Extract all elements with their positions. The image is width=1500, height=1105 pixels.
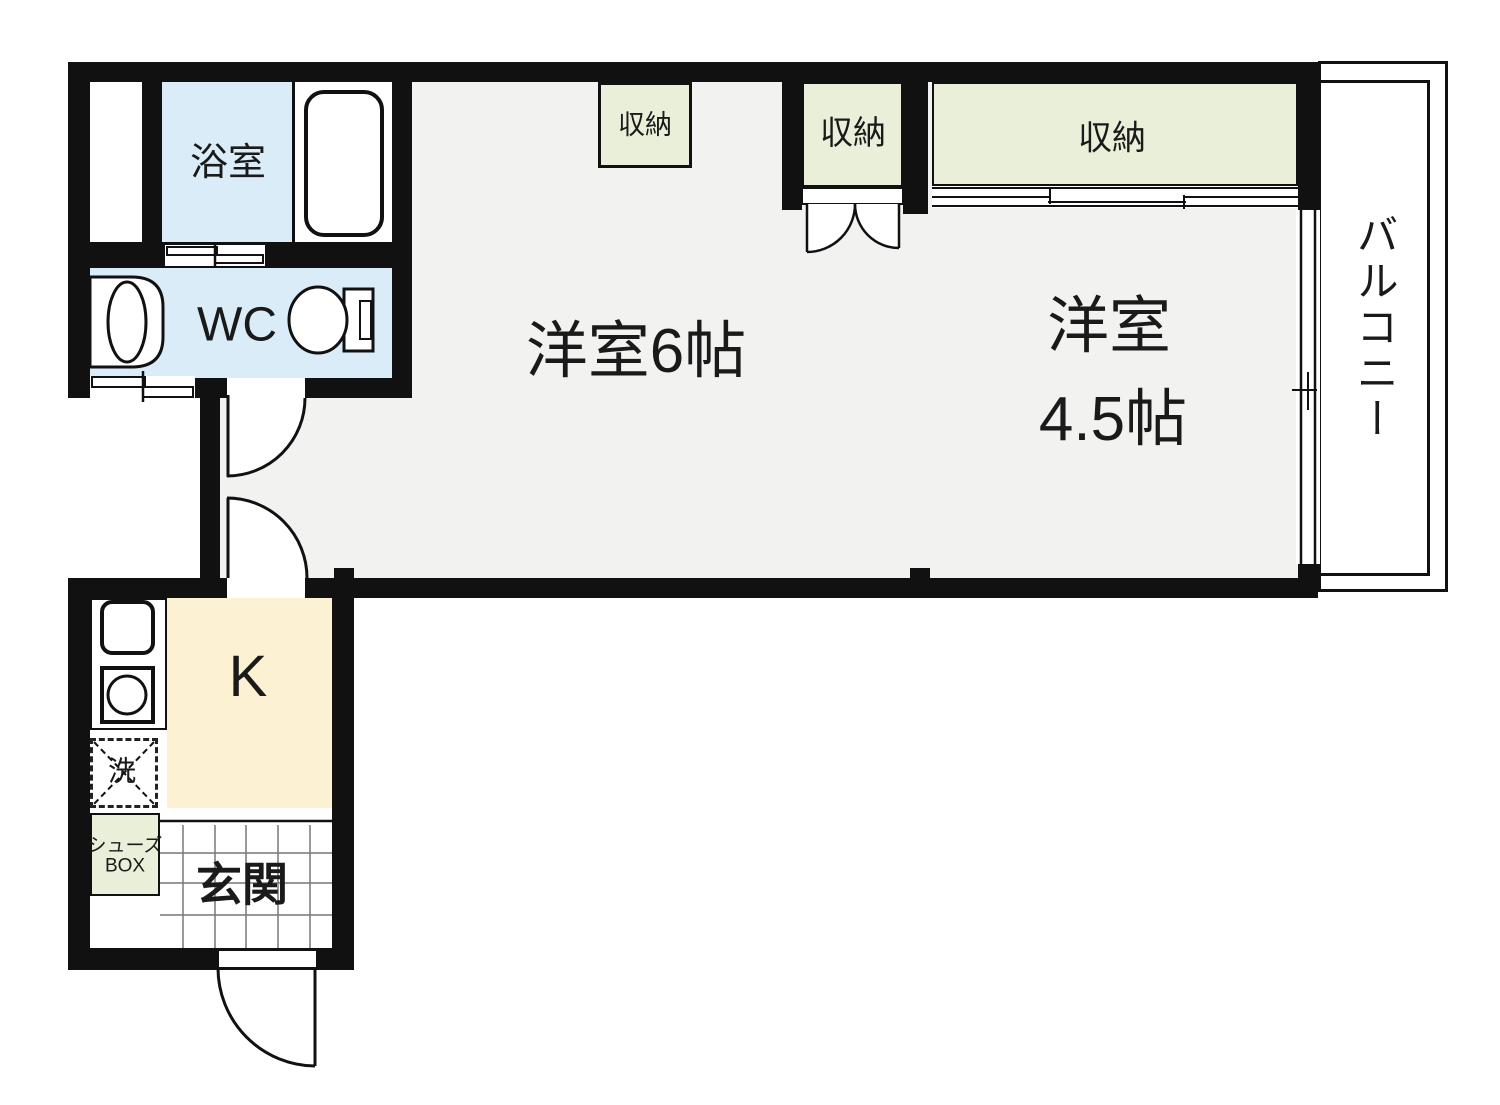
bathroom-label: 浴室: [190, 143, 266, 185]
balcony-label: バルコニー: [1351, 213, 1397, 443]
room-6jo-label: 洋室6帖: [526, 318, 746, 386]
closet-right-label: 収納: [1078, 120, 1146, 157]
floor-plan: 浴室 WC 収納 収納 収納 洋室6帖 洋室 4.5帖 バルコニー K 洗 シュ…: [0, 0, 1500, 1105]
washroom-door-gap: [227, 378, 305, 398]
entry-door-arc: [218, 968, 315, 1066]
bath-slider-sash1: [167, 247, 217, 255]
bath-slider-sash2: [215, 255, 263, 263]
closet-middle-label: 収納: [820, 115, 886, 151]
closet-small-label: 収納: [618, 111, 672, 141]
room-45jo-name-label: 洋室: [1047, 293, 1171, 361]
closet-middle-door-gap: [802, 188, 903, 204]
shoebox-label-line1: シューズ: [87, 837, 162, 858]
kitchen-burner: [108, 676, 146, 714]
kitchen-label: K: [229, 645, 268, 709]
laundry-label: 洗: [108, 757, 136, 788]
bathtub: [306, 92, 382, 235]
kitchen-sink: [102, 602, 153, 653]
wc-window-sash1: [92, 377, 145, 387]
washbasin-bowl: [108, 282, 146, 362]
wc-window-sash2: [143, 387, 193, 397]
entry-door-gap: [218, 950, 317, 968]
toilet-bowl: [289, 287, 347, 353]
shoebox-label-line2: BOX: [105, 857, 145, 878]
wc-label: WC: [197, 300, 277, 353]
entrance-label: 玄関: [196, 860, 288, 911]
room-45jo-size-label: 4.5帖: [1039, 386, 1187, 454]
kitchen-door-gap: [227, 578, 305, 598]
toilet-tank-detail: [360, 301, 371, 339]
